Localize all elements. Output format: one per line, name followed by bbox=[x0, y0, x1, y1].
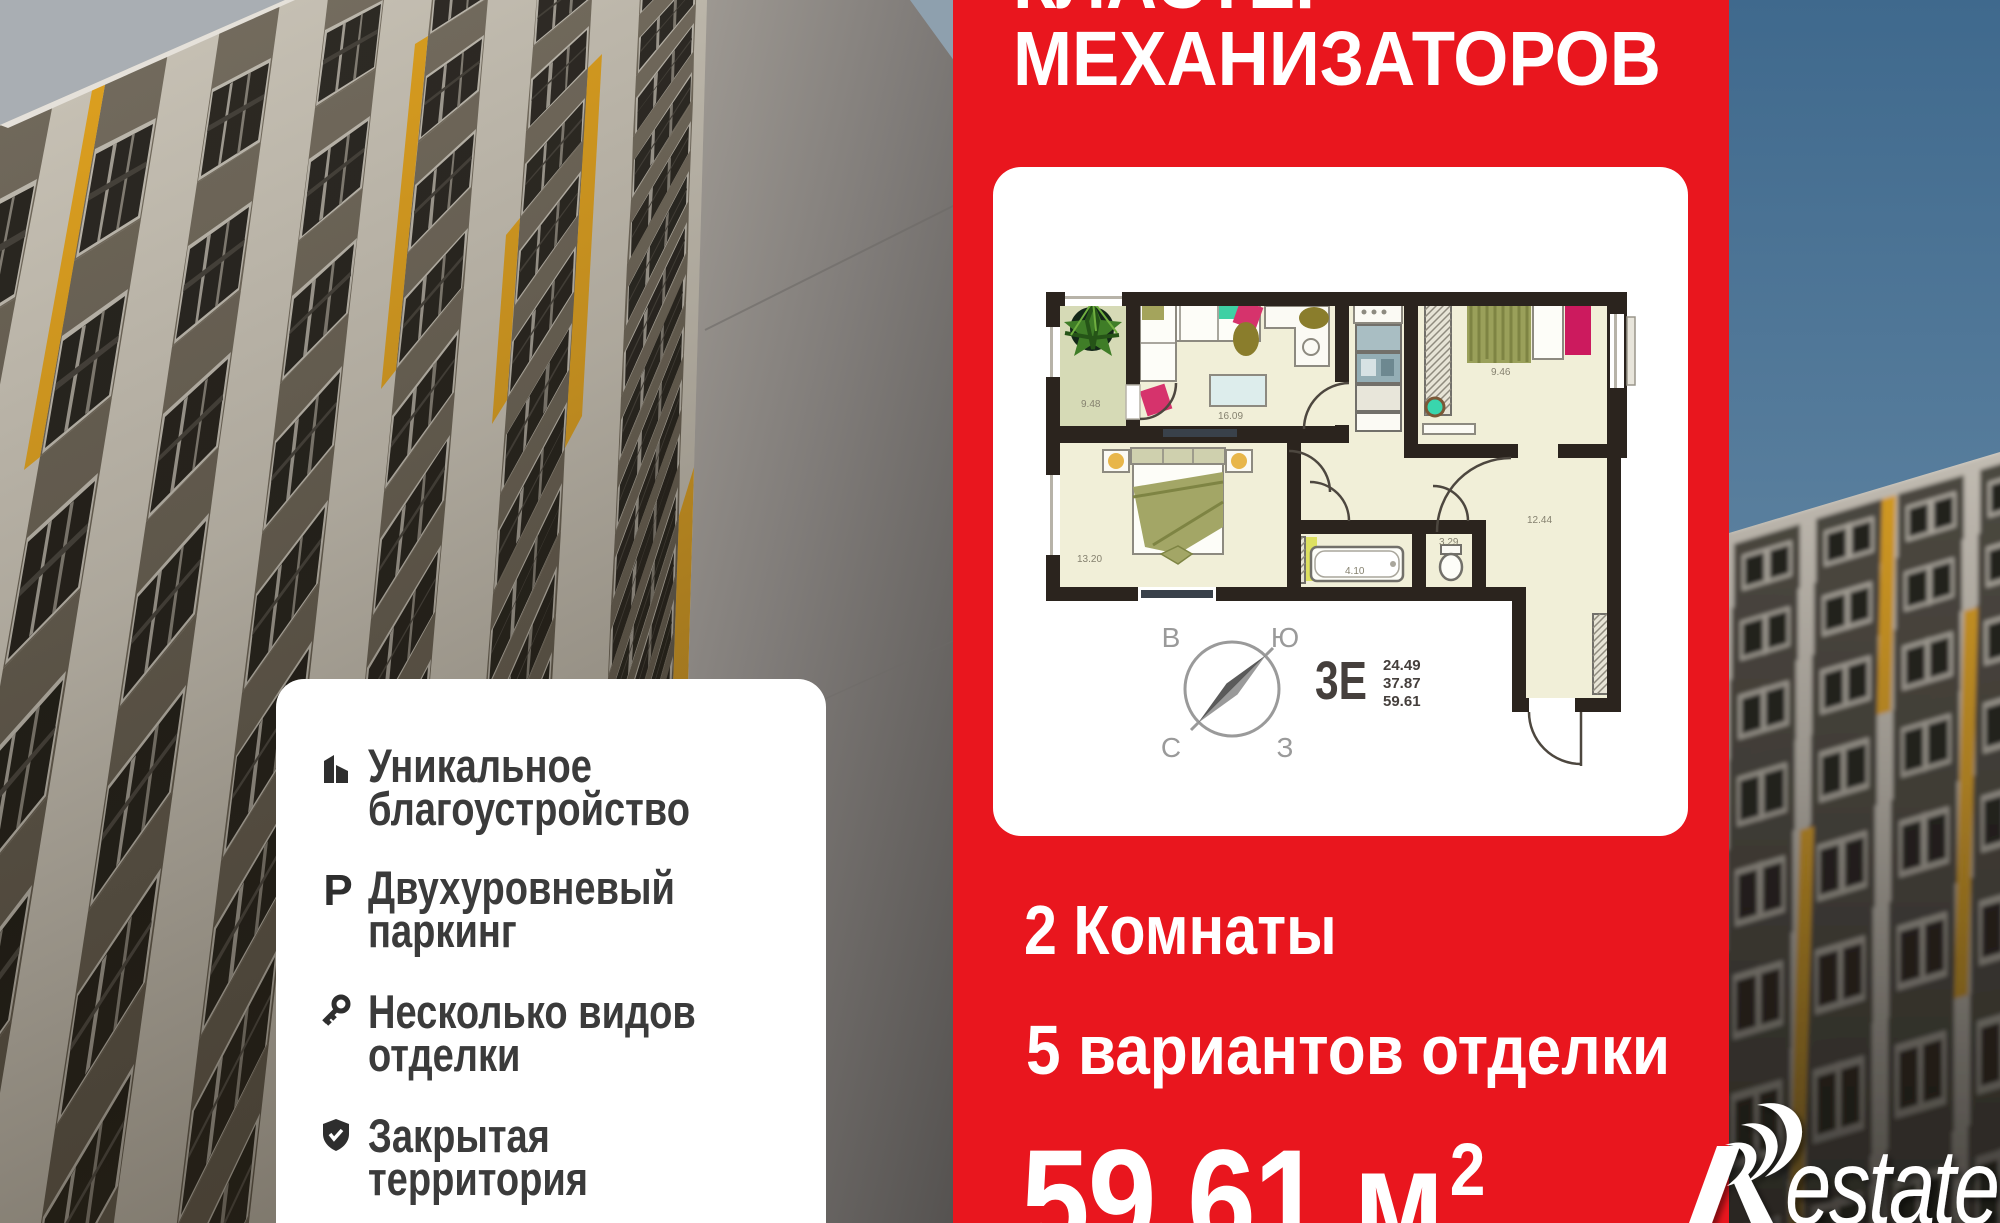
svg-text:4.10: 4.10 bbox=[1345, 566, 1365, 577]
svg-text:З: З bbox=[1277, 732, 1294, 763]
svg-text:В: В bbox=[1162, 622, 1181, 653]
svg-text:3Е: 3Е bbox=[1315, 651, 1367, 711]
svg-text:9.48: 9.48 bbox=[1081, 399, 1101, 410]
svg-text:59.61: 59.61 bbox=[1383, 693, 1421, 710]
svg-text:9.46: 9.46 bbox=[1491, 367, 1511, 378]
svg-text:24.49: 24.49 bbox=[1383, 657, 1421, 674]
svg-text:3.29: 3.29 bbox=[1439, 537, 1459, 548]
svg-text:estate: estate bbox=[1785, 1128, 1998, 1223]
svg-text:16.09: 16.09 bbox=[1218, 411, 1243, 422]
svg-text:37.87: 37.87 bbox=[1383, 675, 1421, 692]
svg-text:С: С bbox=[1161, 732, 1181, 763]
svg-text:13.20: 13.20 bbox=[1077, 554, 1102, 565]
svg-text:Ю: Ю bbox=[1271, 622, 1299, 653]
svg-text:12.44: 12.44 bbox=[1527, 515, 1552, 526]
